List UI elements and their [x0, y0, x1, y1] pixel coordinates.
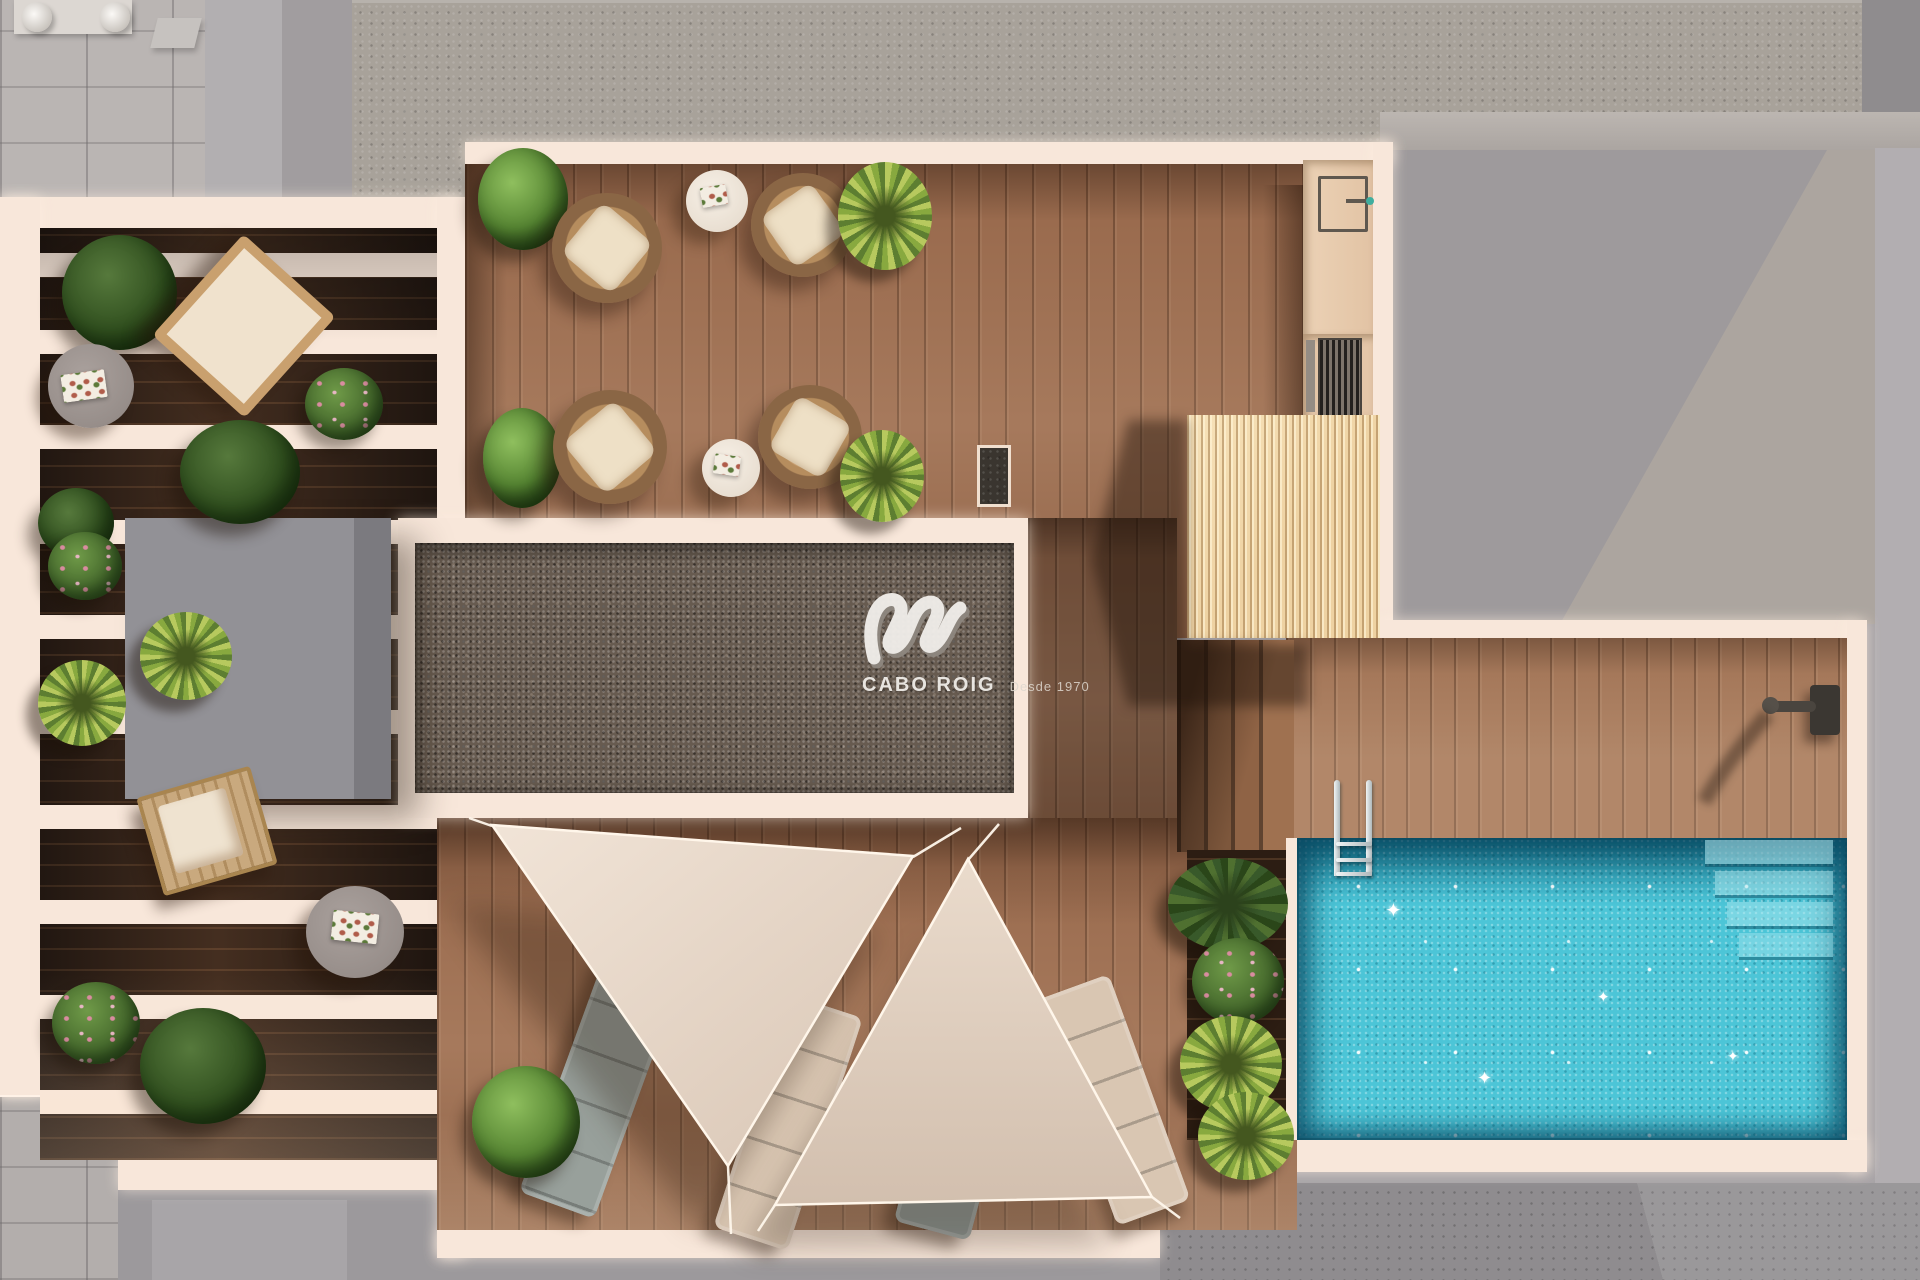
rooftop-render: ✦ ✦ ✦ ✦	[0, 0, 1920, 1280]
wave-swoosh-logo-icon	[852, 578, 1002, 670]
shower-shadow	[1704, 714, 1768, 802]
slat-pergola-shadow	[1092, 420, 1308, 706]
watermark: CABO ROIGDesde 1970	[852, 578, 1092, 708]
brand-name: CABO ROIG	[862, 674, 996, 696]
brand-tagline: Desde 1970	[1010, 679, 1090, 694]
